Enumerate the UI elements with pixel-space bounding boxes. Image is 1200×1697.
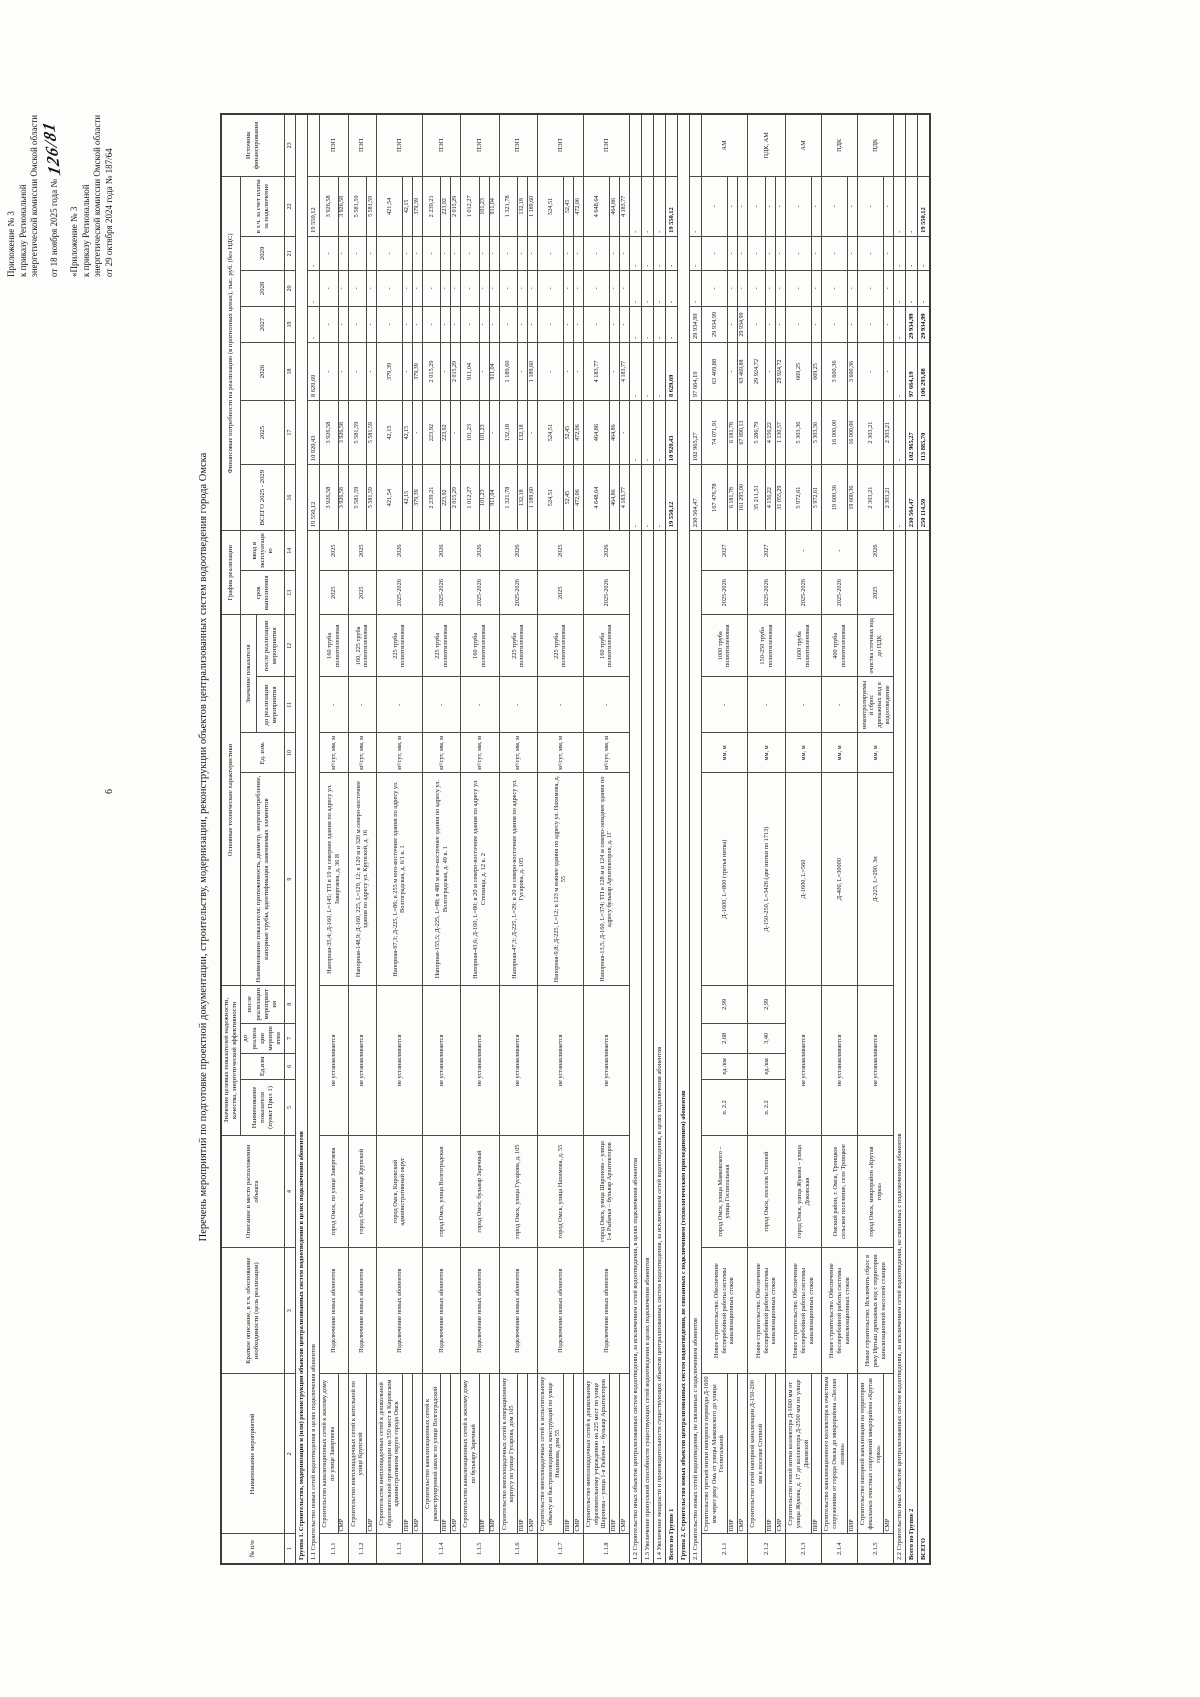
tech-unit-cell: мм, м [786, 733, 822, 773]
finance-value: 524,51 [537, 176, 563, 236]
section-label: 1.3 Увеличение пропускной способности су… [641, 531, 653, 1564]
table-row: 2.1.2Строительство сетей напорной канали… [747, 114, 765, 1564]
finance-value: 379,39 [412, 176, 422, 236]
finance-value: - [641, 465, 653, 531]
location-cell: город Омск, улица Шаронова – улица 1-я Р… [583, 1135, 629, 1247]
finance-value: - [573, 236, 583, 270]
row-number-cell: 2.1.2 [747, 1534, 785, 1564]
column-header: Наименование показателя: протяженность, … [241, 773, 285, 985]
location-cell: город Омск, по улице Завертяева [320, 1135, 348, 1247]
finance-value: 464,86 [583, 401, 609, 465]
goal-cell: Новое строительство. Обеспечение беспере… [747, 1248, 785, 1374]
finance-value: 2 015,29 [451, 342, 461, 400]
finance-value: - [894, 342, 906, 400]
finance-value: 669,25 [786, 342, 812, 400]
finance-value: - [689, 236, 701, 270]
column-number: 5 [285, 1079, 296, 1135]
finance-value: - [412, 236, 422, 270]
finance-value: - [747, 236, 765, 270]
location-cell: город Омск, микрорайон «Крутая горка» [858, 1135, 894, 1247]
finance-value: - [766, 270, 776, 306]
finance-value: 29 934,99 [689, 306, 701, 342]
finance-value: - [653, 342, 665, 400]
tech-unit-cell: м³/сут, мм, м [422, 733, 460, 773]
goal-cell: Подключение новых абонентов [499, 1248, 537, 1374]
finance-value: 223,92 [441, 401, 451, 465]
sub-row-label: ПИР [766, 1374, 776, 1534]
finance-value: 223,92 [441, 465, 451, 531]
commissioning-year-cell: 2027 [747, 531, 785, 571]
finance-value: 29 934,99 [918, 306, 931, 342]
finance-value: - [348, 342, 366, 400]
tech-after-cell: 150-250 труба полиэтиленовая [747, 615, 785, 677]
finance-value: - [822, 270, 848, 306]
finance-value: - [776, 176, 786, 236]
commissioning-year-cell: - [786, 531, 822, 571]
finance-value: - [348, 306, 366, 342]
goal-cell: Подключение новых абонентов [583, 1248, 629, 1374]
finance-value: 101,23 [479, 176, 489, 236]
finance-value: 3 926,58 [338, 401, 348, 465]
finance-value: 74 071,91 [701, 401, 727, 465]
goal-cell: Подключение новых абонентов [461, 1248, 499, 1374]
tech-before-cell: - [320, 677, 348, 733]
finance-value: - [499, 236, 517, 270]
finance-value: 10 920,43 [665, 401, 677, 465]
section-row: Группа 2. Строительство новых объектов ц… [677, 114, 689, 1564]
funding-source: ПЭП [499, 114, 537, 176]
tech-before-cell: - [461, 677, 499, 733]
section-row: 1.1 Строительство новых сетей водоотведе… [308, 114, 320, 1564]
table-row: 1.1.6Строительство внеплощадочных сетей … [499, 114, 517, 1564]
finance-value: 132,18 [499, 401, 517, 465]
finance-value: - [422, 270, 440, 306]
sub-row-label: СМР [527, 1374, 537, 1534]
sub-row-label: ПИР [727, 1374, 737, 1534]
finance-value: 2 239,21 [422, 465, 440, 531]
finance-value: - [461, 236, 479, 270]
sub-row-label: СМР [412, 1374, 422, 1534]
finance-value: 97 664,19 [906, 342, 918, 400]
finance-value: - [563, 270, 573, 306]
finance-value: - [689, 176, 701, 236]
section-label: Группа 2. Строительство новых объектов ц… [677, 114, 689, 1564]
target-after-cell: 2,99 [747, 985, 785, 1023]
finance-value: 911,04 [489, 342, 499, 400]
group-header-targets: Значение целевых показателей надежности,… [221, 985, 241, 1135]
finance-value: - [641, 401, 653, 465]
finance-value: 2 303,21 [858, 401, 884, 465]
finance-value: - [619, 401, 629, 465]
finance-value: - [537, 270, 563, 306]
finance-value: - [412, 270, 422, 306]
funding-source [689, 114, 701, 176]
commissioning-year-cell: 2026 [461, 531, 499, 571]
measure-name-cell: Строительство внеплощадочных сетей к кот… [348, 1374, 366, 1534]
finance-value: - [629, 465, 641, 531]
finance-value: - [573, 306, 583, 342]
location-cell: город Омск, улица Нахимова, д. 55 [537, 1135, 583, 1247]
finance-value: - [479, 342, 489, 400]
column-number: 12 [285, 615, 296, 677]
finance-value: - [629, 401, 641, 465]
schedule-period-cell: 2025-2026 [786, 571, 822, 615]
column-header: 2025 [241, 401, 285, 465]
finance-value: - [848, 236, 858, 270]
finance-value: - [776, 306, 786, 342]
row-number-cell: 1.1.4 [422, 1534, 460, 1564]
finance-value: - [786, 270, 812, 306]
column-number: 7 [285, 1023, 296, 1053]
column-header: Описание и место расположения объекта [221, 1135, 285, 1247]
finance-value: 1 321,78 [499, 465, 517, 531]
goal-cell: Подключение новых абонентов [320, 1248, 348, 1374]
finance-value: 5 581,59 [366, 176, 376, 236]
finance-value: - [338, 306, 348, 342]
sub-row-label: СМР [366, 1374, 376, 1534]
sub-row-label: СМР [884, 1374, 894, 1534]
column-header: ВСЕГО 2025 - 2029 [241, 465, 285, 531]
finance-value: - [641, 176, 653, 236]
finance-value: - [727, 176, 737, 236]
column-number: 8 [285, 985, 296, 1023]
target-indicator-cell: не устанавливается [422, 985, 460, 1135]
finance-value: - [320, 306, 338, 342]
goal-cell: Подключение новых абонентов [537, 1248, 583, 1374]
finance-value: - [583, 270, 609, 306]
finance-value: - [451, 236, 461, 270]
finance-value: - [402, 342, 412, 400]
finance-value: - [563, 342, 573, 400]
finance-value: 167 476,78 [701, 465, 727, 531]
location-cell: город Омск, улица Маяковского – улица Го… [701, 1135, 747, 1247]
finance-value: - [308, 270, 320, 306]
tech-after-cell: 160 труба полиэтиленовая [320, 615, 348, 677]
target-before-cell: 2,68 [701, 1023, 747, 1053]
finance-value: 42,15 [376, 401, 402, 465]
finance-value: - [766, 342, 776, 400]
table-body: Группа 1. Строительство, модернизация и … [296, 114, 931, 1564]
finance-value: 5 581,59 [366, 465, 376, 531]
finance-value: 2 015,29 [422, 342, 440, 400]
goal-cell: Новое строительство. Обеспечение беспере… [701, 1248, 747, 1374]
finance-value: 29 934,99 [906, 306, 918, 342]
finance-value: 42,15 [402, 401, 412, 465]
location-cell: город Омск, по улице Крупской [348, 1135, 376, 1247]
finance-value: 8 629,69 [308, 342, 320, 400]
finance-value: 97 664,19 [689, 342, 701, 400]
sub-row-label: ПИР [479, 1374, 489, 1534]
section-row: Всего по Группе 2230 564,47102 965,2797 … [906, 114, 918, 1564]
finance-value: 52,45 [563, 465, 573, 531]
column-header: срок выполнения [241, 571, 285, 615]
finance-value: 472,06 [573, 176, 583, 236]
finance-value: 911,04 [461, 342, 479, 400]
finance-value: 16 000,00 [848, 401, 858, 465]
schedule-period-cell: 2025-2026 [747, 571, 785, 615]
finance-value: - [653, 236, 665, 270]
funding-source: ПЭП [348, 114, 376, 176]
finance-value: - [412, 306, 422, 342]
section-row: 2.2 Строительство иных объектов централи… [894, 114, 906, 1564]
finance-value: - [848, 176, 858, 236]
measure-name-cell: Строительство внеплощадочных сетей к опе… [499, 1374, 517, 1534]
finance-value: - [338, 270, 348, 306]
finance-value: - [573, 270, 583, 306]
column-header: Краткое описание, в т.ч. обоснование нео… [221, 1248, 285, 1374]
column-number: 4 [285, 1135, 296, 1247]
funding-source [653, 114, 665, 176]
finance-value: - [629, 342, 641, 400]
schedule-period-cell: 2025-2026 [583, 571, 629, 615]
finance-value: - [366, 342, 376, 400]
section-row: 2.1 Строительство новых сетей водоотведе… [689, 114, 701, 1564]
commissioning-year-cell: 2025 [537, 531, 583, 571]
goal-cell: Подключение новых абонентов [422, 1248, 460, 1374]
table-header: № п/пНаименование мероприятийКраткое опи… [221, 114, 296, 1564]
finance-value: 63 469,88 [701, 342, 727, 400]
table-row: 2.1.5Строительство напорной канализации … [858, 114, 884, 1564]
finance-value: 464,86 [609, 176, 619, 236]
funding-source: ПЭП [583, 114, 629, 176]
scanned-document-page: { "page_number": "6", "appendix": { "blo… [0, 0, 1200, 1697]
column-number: 6 [285, 1053, 296, 1079]
schedule-period-cell: 2025-2026 [499, 571, 537, 615]
finance-value: 3 926,58 [338, 176, 348, 236]
sub-row-label: СМР [338, 1374, 348, 1534]
finance-value: - [894, 236, 906, 270]
measure-name-cell: Строительство канализационных сетей к жи… [320, 1374, 338, 1534]
finance-value: - [629, 306, 641, 342]
finance-value: - [573, 342, 583, 400]
finance-value: - [727, 236, 737, 270]
commissioning-year-cell: - [822, 531, 858, 571]
finance-value: - [308, 236, 320, 270]
finance-value: 5 303,36 [786, 401, 812, 465]
finance-value: - [747, 306, 765, 342]
finance-value: - [766, 236, 776, 270]
finance-value: 250 114,59 [918, 465, 931, 531]
page-number: 6 [104, 789, 115, 794]
sub-row-label: ПИР [609, 1374, 619, 1534]
column-header: 2026 [241, 342, 285, 400]
tech-unit-cell: м³/сут, мм, м [320, 733, 348, 773]
sub-row-label: СМР [489, 1374, 499, 1534]
finance-value: 379,39 [412, 465, 422, 531]
table-row: 1.1.5Строительство канализационных сетей… [461, 114, 479, 1564]
column-header: после реализации мероприятия [241, 985, 285, 1023]
section-row: 1.2 Строительство иных объектов централи… [629, 114, 641, 1564]
finance-value: 19 550,12 [918, 176, 931, 236]
tech-after-cell: 225 труба полиэтиленовая [537, 615, 583, 677]
tech-unit-cell: м³/сут, мм, м [583, 733, 629, 773]
finance-value: - [653, 176, 665, 236]
appendix-line: Приложение № 3 [6, 42, 18, 277]
finance-value: 67 890,13 [737, 401, 747, 465]
finance-value: 6 181,78 [727, 465, 737, 531]
appendix-line: от 29 октября 2024 года № 187/64 [104, 42, 116, 277]
goal-cell: Новое строительство. Обеспечение беспере… [822, 1248, 858, 1374]
funding-source [906, 114, 918, 176]
finance-value: 1 012,27 [461, 465, 479, 531]
finance-value: - [884, 306, 894, 342]
column-number: 13 [285, 571, 296, 615]
table-row: 1.1.3Строительство внеплощадочных сетей … [376, 114, 402, 1564]
tech-name-cell: Д-150-250, L=3426 (две нитки по 1713) [747, 773, 785, 985]
finance-value: - [451, 270, 461, 306]
section-row: 1.4 Увеличение мощности и производительн… [653, 114, 665, 1564]
finance-value: - [537, 306, 563, 342]
column-numbers-row: 12345678910111213141617181920212223 [285, 114, 296, 1564]
commissioning-year-cell: 2025 [320, 531, 348, 571]
finance-value: - [884, 236, 894, 270]
target-indicator-cell: не устанавливается [499, 985, 537, 1135]
finance-value: - [517, 236, 527, 270]
finance-value: - [641, 342, 653, 400]
finance-value: - [489, 306, 499, 342]
finance-value: - [479, 236, 489, 270]
tech-after-cell: 160 труба полиэтиленовая [583, 615, 629, 677]
finance-value: 19 550,12 [665, 176, 677, 236]
measure-name-cell: Строительство новой нитки коллектора Д-1… [786, 1374, 812, 1534]
tech-before-cell: - [786, 677, 822, 733]
finance-value: - [451, 401, 461, 465]
finance-value: 101,23 [479, 401, 489, 465]
row-number-cell: 1.1.7 [537, 1534, 583, 1564]
finance-value: 2 015,29 [451, 176, 461, 236]
finance-value: 4 183,77 [619, 465, 629, 531]
target-indicator-cell: не устанавливается [858, 985, 894, 1135]
finance-value: - [786, 306, 812, 342]
finance-value: - [653, 270, 665, 306]
tech-before-cell: - [583, 677, 629, 733]
finance-value: 2 015,29 [451, 465, 461, 531]
tech-after-cell: очистка сточных вод до ПДК [858, 615, 894, 677]
tech-after-cell: 225 труба полиэтиленовая [376, 615, 422, 677]
finance-value: 35 211,51 [747, 465, 765, 531]
location-cell: город Омск, поселок Степной [747, 1135, 785, 1247]
commissioning-year-cell: 2026 [583, 531, 629, 571]
finance-value: - [348, 236, 366, 270]
finance-value: - [884, 176, 894, 236]
finance-value: 911,04 [489, 176, 499, 236]
finance-value: 2 303,21 [884, 401, 894, 465]
finance-value: - [727, 306, 737, 342]
finance-value: 132,18 [517, 465, 527, 531]
finance-value: - [701, 176, 727, 236]
tech-before-cell: - [499, 677, 537, 733]
finance-value: 52,45 [563, 176, 573, 236]
target-indicator-cell: не устанавливается [348, 985, 376, 1135]
finance-value: - [489, 270, 499, 306]
finance-value: 3 926,58 [320, 401, 338, 465]
schedule-period-cell: 2025-2026 [822, 571, 858, 615]
finance-value: - [376, 236, 402, 270]
tech-after-cell: 225 труба полиэтиленовая [422, 615, 460, 677]
finance-value: 1 189,60 [527, 342, 537, 400]
finance-value: - [441, 342, 451, 400]
target-indicator-cell: не устанавливается [461, 985, 499, 1135]
target-indicator-cell: не устанавливается [786, 985, 822, 1135]
tech-name-cell: Напорная-9,8; Д-225, L=12; в 123 м южнее… [537, 773, 583, 985]
finance-value: 2 239,21 [422, 176, 440, 236]
finance-value: 5 303,36 [812, 401, 822, 465]
finance-value: - [583, 306, 609, 342]
funding-source [665, 114, 677, 176]
finance-value: 421,54 [376, 465, 402, 531]
measure-name-cell: Строительство внеплощадочных сетей к дош… [376, 1374, 402, 1534]
finance-value: - [517, 306, 527, 342]
target-unit-cell: ед./км [701, 1053, 747, 1079]
finance-value: - [884, 270, 894, 306]
measure-name-cell: Строительство сетей напорной канализации… [747, 1374, 765, 1534]
finance-value: 101,23 [461, 401, 479, 465]
finance-value: - [563, 306, 573, 342]
location-cell: город Омск, Кировский административный о… [376, 1135, 422, 1247]
finance-value: - [527, 270, 537, 306]
finance-value: 5 581,59 [348, 176, 366, 236]
target-unit-cell: ед./км [747, 1053, 785, 1079]
finance-value: - [737, 176, 747, 236]
finance-value: 102 965,27 [689, 401, 701, 465]
column-number: 10 [285, 733, 296, 773]
finance-value: 19 550,12 [308, 176, 320, 236]
appendix-block-1: Приложение № 3к приказу Региональнойэнер… [6, 42, 62, 277]
finance-value: - [747, 270, 765, 306]
finance-value: - [461, 270, 479, 306]
row-number-cell: 1.1.5 [461, 1534, 499, 1564]
finance-value: 52,45 [563, 401, 573, 465]
finance-value: - [858, 236, 884, 270]
finance-value: 4 183,77 [619, 176, 629, 236]
column-number: 1 [285, 1534, 296, 1564]
column-number: 9 [285, 773, 296, 985]
target-indicator-cell: п. 2.2 [747, 1079, 785, 1135]
appendix-line: «Приложение № 3 [69, 42, 81, 277]
measure-name-cell: Строительство канализационных сетей к ре… [422, 1374, 440, 1534]
group-header-schedule: График реализации [221, 531, 241, 615]
table-row: 1.1.8Строительство внеплощадочных сетей … [583, 114, 609, 1564]
column-number: 20 [285, 270, 296, 306]
finance-value: 29 934,99 [701, 306, 727, 342]
column-header: Наименование мероприятий [221, 1374, 285, 1534]
finance-value: - [689, 270, 701, 306]
target-indicator-cell: не устанавливается [376, 985, 422, 1135]
finance-value: - [641, 270, 653, 306]
handwritten-number: 126/81 [37, 120, 66, 177]
finance-value: 1 189,60 [527, 176, 537, 236]
location-cell: город Омск, улица Жукова – улица Доковск… [786, 1135, 822, 1247]
finance-value: 230 564,47 [689, 465, 701, 531]
finance-value: - [629, 236, 641, 270]
finance-value: 464,86 [609, 401, 619, 465]
funding-source: ПЭП [376, 114, 422, 176]
finance-value: - [665, 236, 677, 270]
column-number: 17 [285, 401, 296, 465]
schedule-period-cell: 2025 [537, 571, 583, 615]
finance-value: - [653, 306, 665, 342]
column-number: 18 [285, 342, 296, 400]
finance-value: - [619, 306, 629, 342]
finance-value: 5 581,59 [348, 401, 366, 465]
column-number: 2 [285, 1374, 296, 1534]
column-header: в т.ч. за счет платы за подключение [241, 176, 285, 236]
row-number-cell: 2.1.1 [701, 1534, 747, 1564]
finance-value: - [737, 236, 747, 270]
finance-value: 524,51 [537, 401, 563, 465]
section-label: 1.1 Строительство новых сетей водоотведе… [308, 531, 320, 1564]
column-header: после реализации мероприятия [257, 615, 285, 677]
